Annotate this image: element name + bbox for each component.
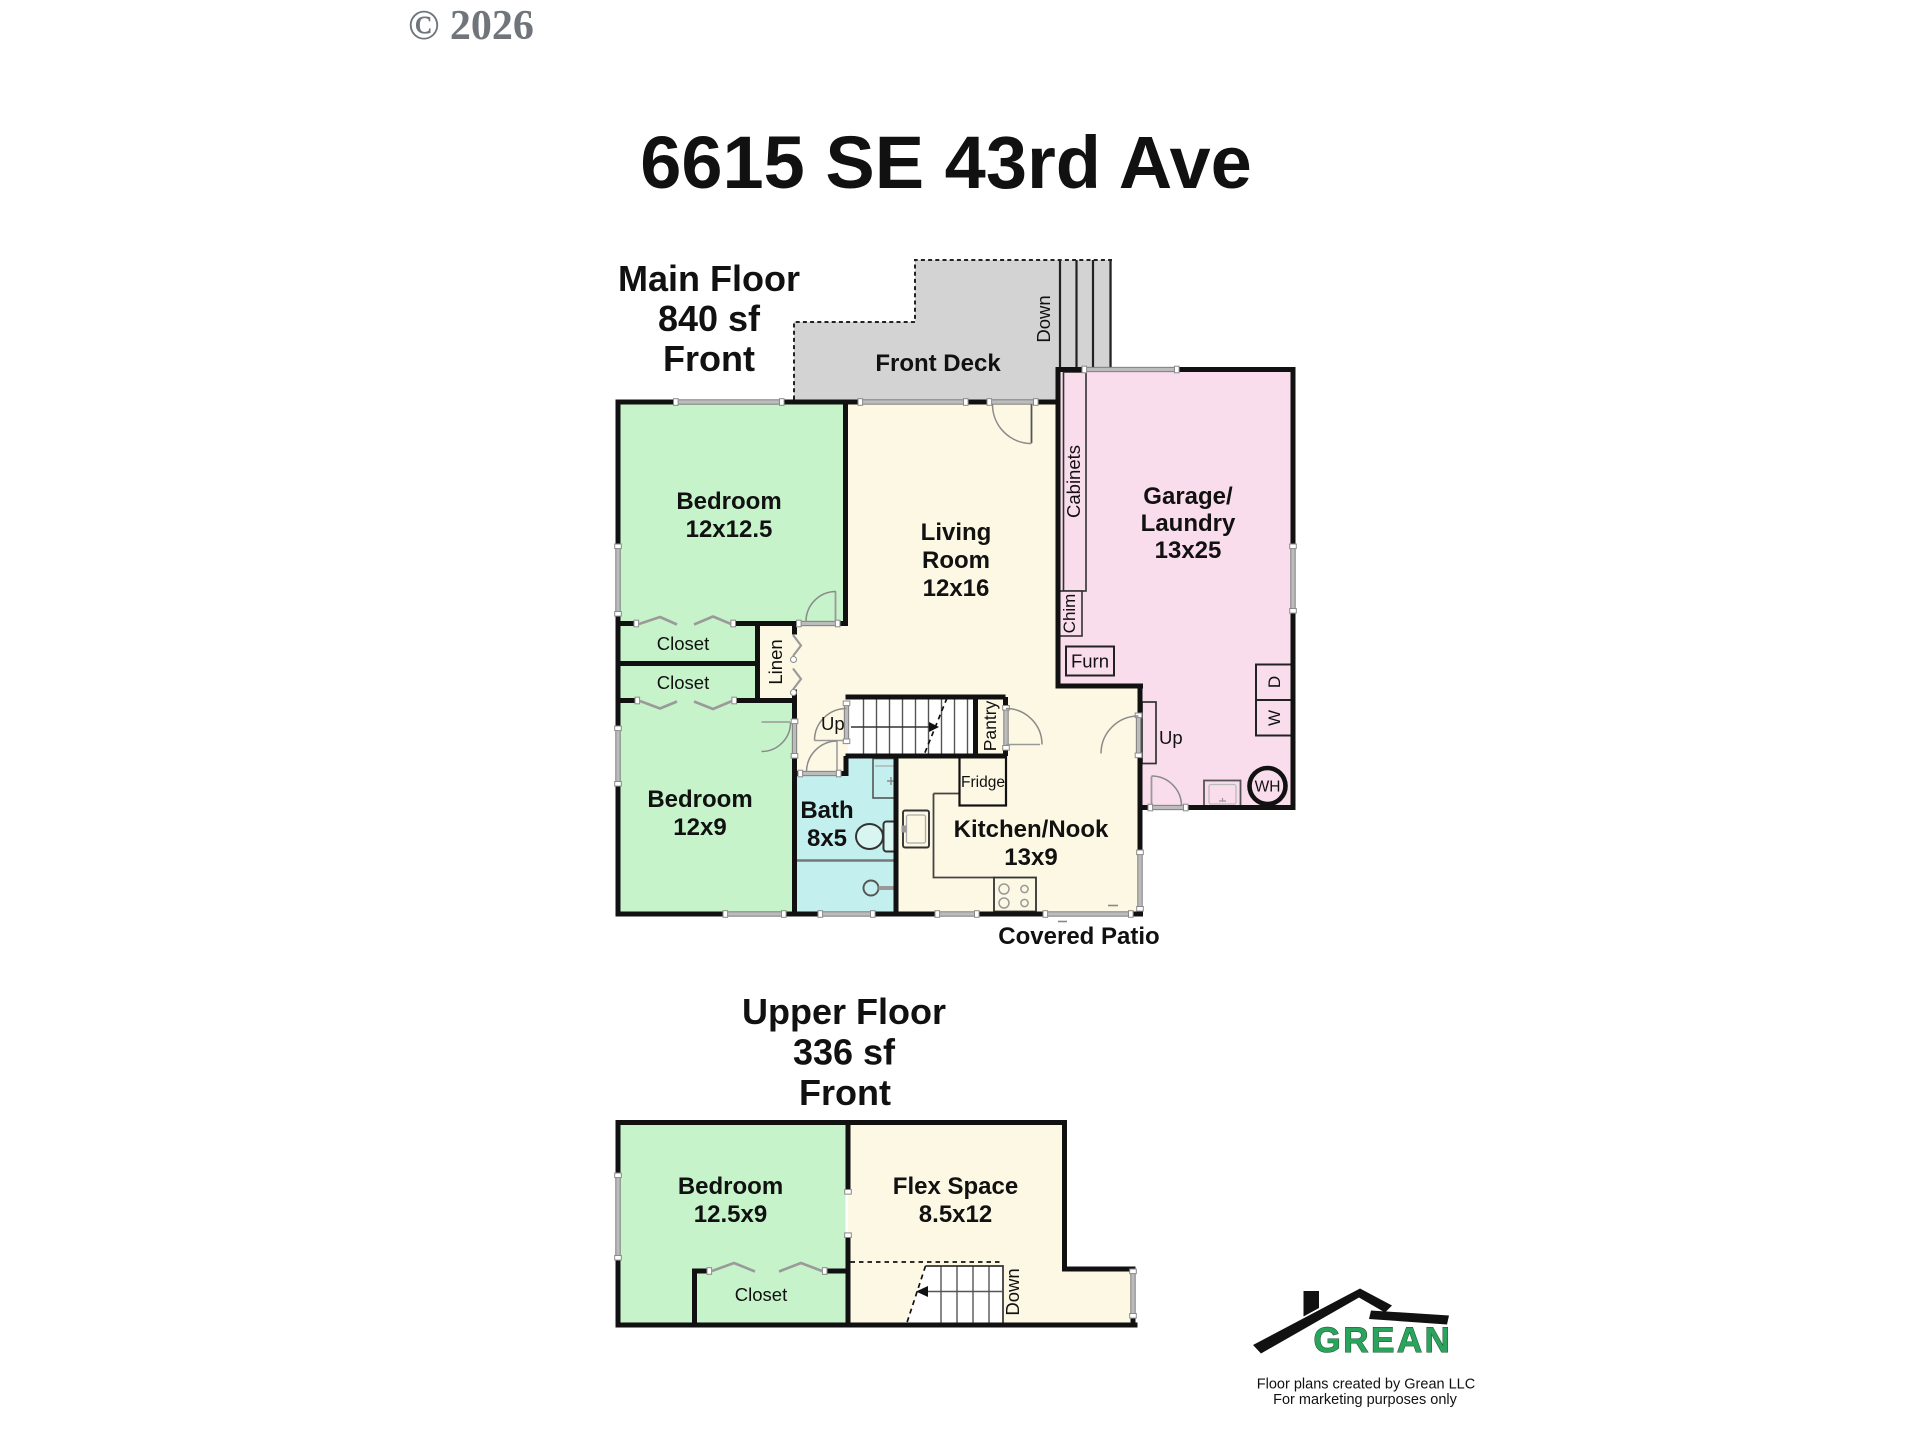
svg-text:Down: Down (1002, 1268, 1023, 1315)
svg-text:Down: Down (1033, 295, 1054, 342)
svg-text:Chim: Chim (1060, 594, 1079, 634)
svg-text:Bedroom: Bedroom (678, 1173, 783, 1200)
svg-text:Linen: Linen (765, 639, 786, 684)
svg-text:Bedroom: Bedroom (647, 786, 752, 813)
svg-text:For marketing purposes only: For marketing purposes only (1273, 1392, 1457, 1408)
svg-text:Front: Front (663, 338, 755, 379)
svg-text:8.5x12: 8.5x12 (919, 1201, 992, 1228)
svg-text:840 sf: 840 sf (658, 298, 761, 339)
svg-text:W: W (1265, 710, 1284, 726)
svg-text:13x25: 13x25 (1155, 537, 1222, 564)
svg-text:Closet: Closet (657, 672, 709, 693)
svg-text:Furn: Furn (1071, 651, 1109, 672)
svg-text:© 2026: © 2026 (408, 3, 534, 49)
svg-text:Closet: Closet (735, 1284, 787, 1305)
svg-text:Kitchen/Nook: Kitchen/Nook (954, 816, 1109, 843)
svg-text:12.5x9: 12.5x9 (694, 1201, 767, 1228)
svg-text:Fridge: Fridge (961, 774, 1005, 791)
svg-text:12x9: 12x9 (673, 814, 726, 841)
svg-text:13x9: 13x9 (1004, 844, 1057, 871)
svg-text:Flex Space: Flex Space (893, 1173, 1018, 1200)
svg-text:Front: Front (799, 1072, 891, 1113)
svg-text:Up: Up (821, 713, 845, 734)
svg-text:Room: Room (922, 547, 990, 574)
svg-text:336 sf: 336 sf (793, 1032, 896, 1073)
svg-text:Living: Living (921, 519, 992, 546)
svg-text:Closet: Closet (657, 633, 709, 654)
svg-text:Upper Floor: Upper Floor (742, 991, 946, 1032)
svg-text:Cabinets: Cabinets (1063, 445, 1084, 518)
svg-text:12x16: 12x16 (923, 575, 990, 602)
svg-text:6615 SE 43rd Ave: 6615 SE 43rd Ave (640, 121, 1252, 204)
svg-text:D: D (1265, 676, 1284, 688)
svg-text:8x5: 8x5 (807, 825, 847, 852)
svg-text:Garage/: Garage/ (1143, 483, 1233, 510)
svg-text:Floor plans created by Grean L: Floor plans created by Grean LLC (1257, 1377, 1475, 1393)
svg-text:12x12.5: 12x12.5 (686, 516, 773, 543)
svg-text:Laundry: Laundry (1141, 510, 1236, 537)
svg-text:Pantry: Pantry (980, 700, 1000, 751)
svg-text:Front Deck: Front Deck (875, 350, 1001, 377)
svg-text:WH: WH (1255, 779, 1281, 796)
svg-text:Covered Patio: Covered Patio (998, 923, 1159, 950)
svg-text:Main Floor: Main Floor (618, 258, 800, 299)
svg-text:Bedroom: Bedroom (676, 488, 781, 515)
svg-text:Bath: Bath (800, 797, 853, 824)
svg-text:GREAN: GREAN (1314, 1321, 1453, 1360)
svg-text:Up: Up (1159, 727, 1183, 748)
